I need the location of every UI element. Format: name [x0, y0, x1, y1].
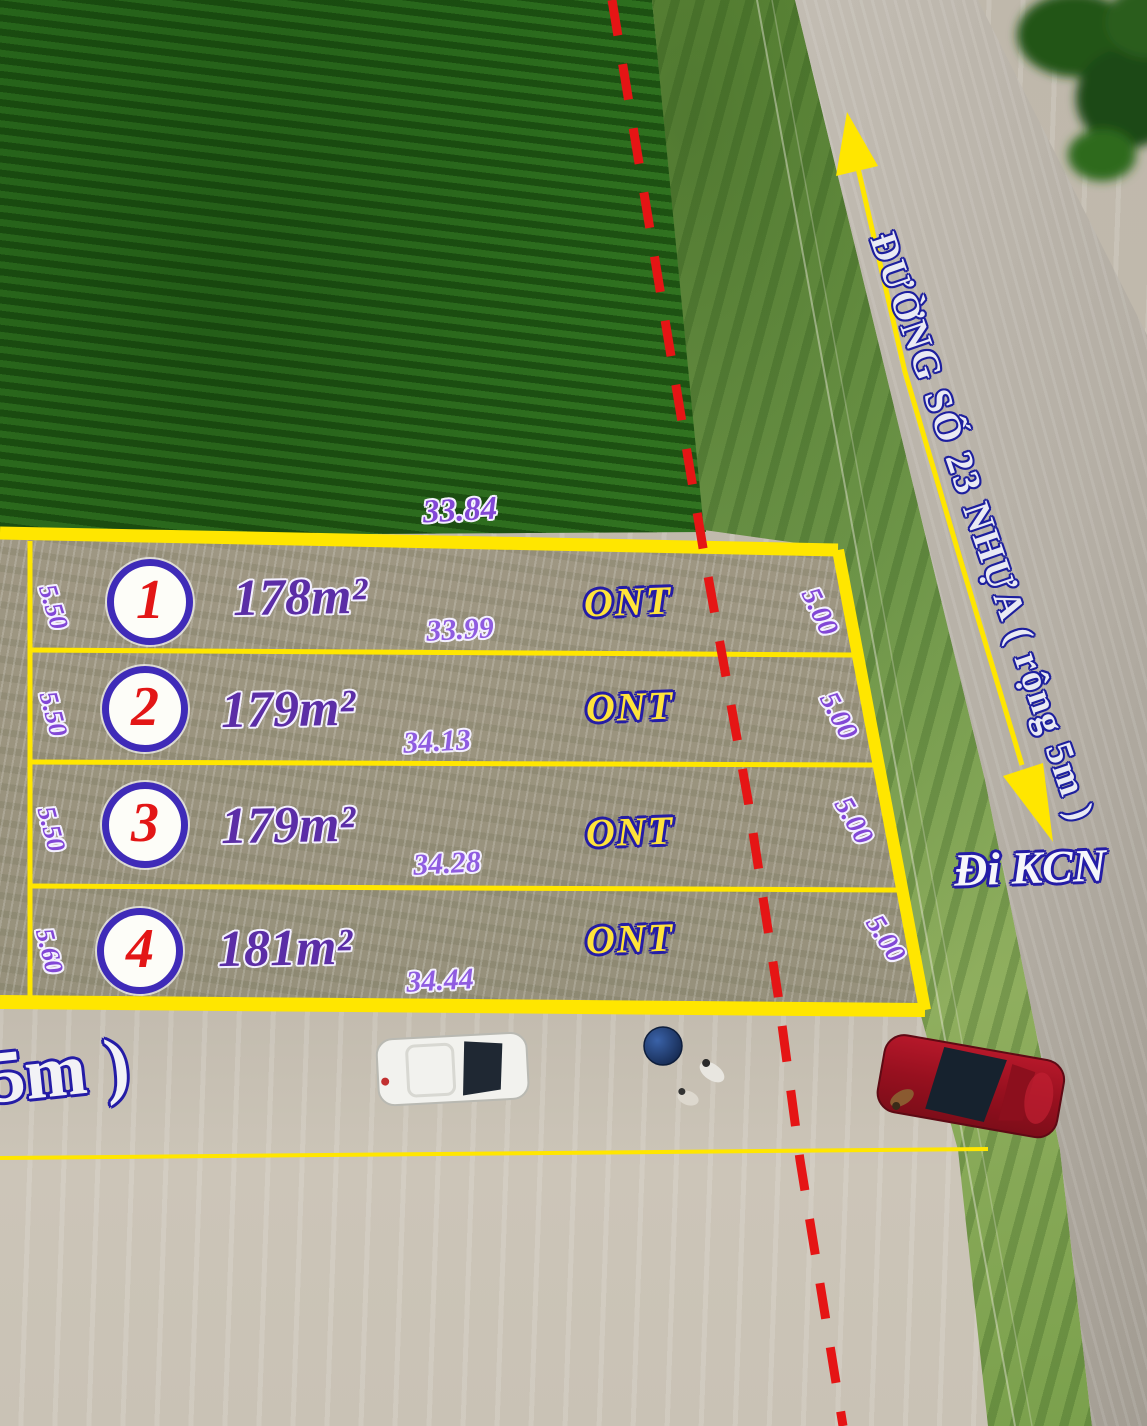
plot-2-zoning: ONT: [585, 685, 675, 728]
plot-2-area: 179m²: [221, 683, 356, 737]
plot-1-area: 178m²: [233, 571, 368, 625]
plot-2-number: 2: [131, 675, 159, 739]
plot-4-number-badge: 4: [97, 908, 183, 994]
plot-2-bottom-dimension: 34.13: [403, 725, 472, 758]
plot-3-number: 3: [131, 791, 159, 855]
plot-4-area: 181m²: [218, 922, 353, 976]
road-direction-label: Đi KCN: [953, 842, 1107, 893]
plot-1-bottom-dimension: 33.99: [426, 613, 495, 646]
bottom-road-label-partial: 5m ): [0, 1027, 133, 1115]
top-edge-dimension: 33.84: [422, 493, 498, 530]
plot-1-zoning: ONT: [583, 580, 673, 623]
plot-1-number: 1: [136, 568, 164, 632]
plot-3-bottom-dimension: 34.28: [413, 847, 482, 880]
plot-1-number-badge: 1: [107, 559, 193, 645]
plot-3-zoning: ONT: [585, 810, 675, 853]
plot-2-number-badge: 2: [102, 666, 188, 752]
plot-4-bottom-dimension: 34.44: [406, 964, 475, 997]
plot-3-number-badge: 3: [102, 782, 188, 868]
land-plot-aerial-map: 33.84 1 178m² ONT 33.99 5.50 5.00 2 179m…: [0, 0, 1147, 1426]
plot-3-area: 179m²: [221, 799, 356, 853]
plot-4-zoning: ONT: [585, 917, 675, 960]
plot-4-number: 4: [126, 917, 154, 981]
